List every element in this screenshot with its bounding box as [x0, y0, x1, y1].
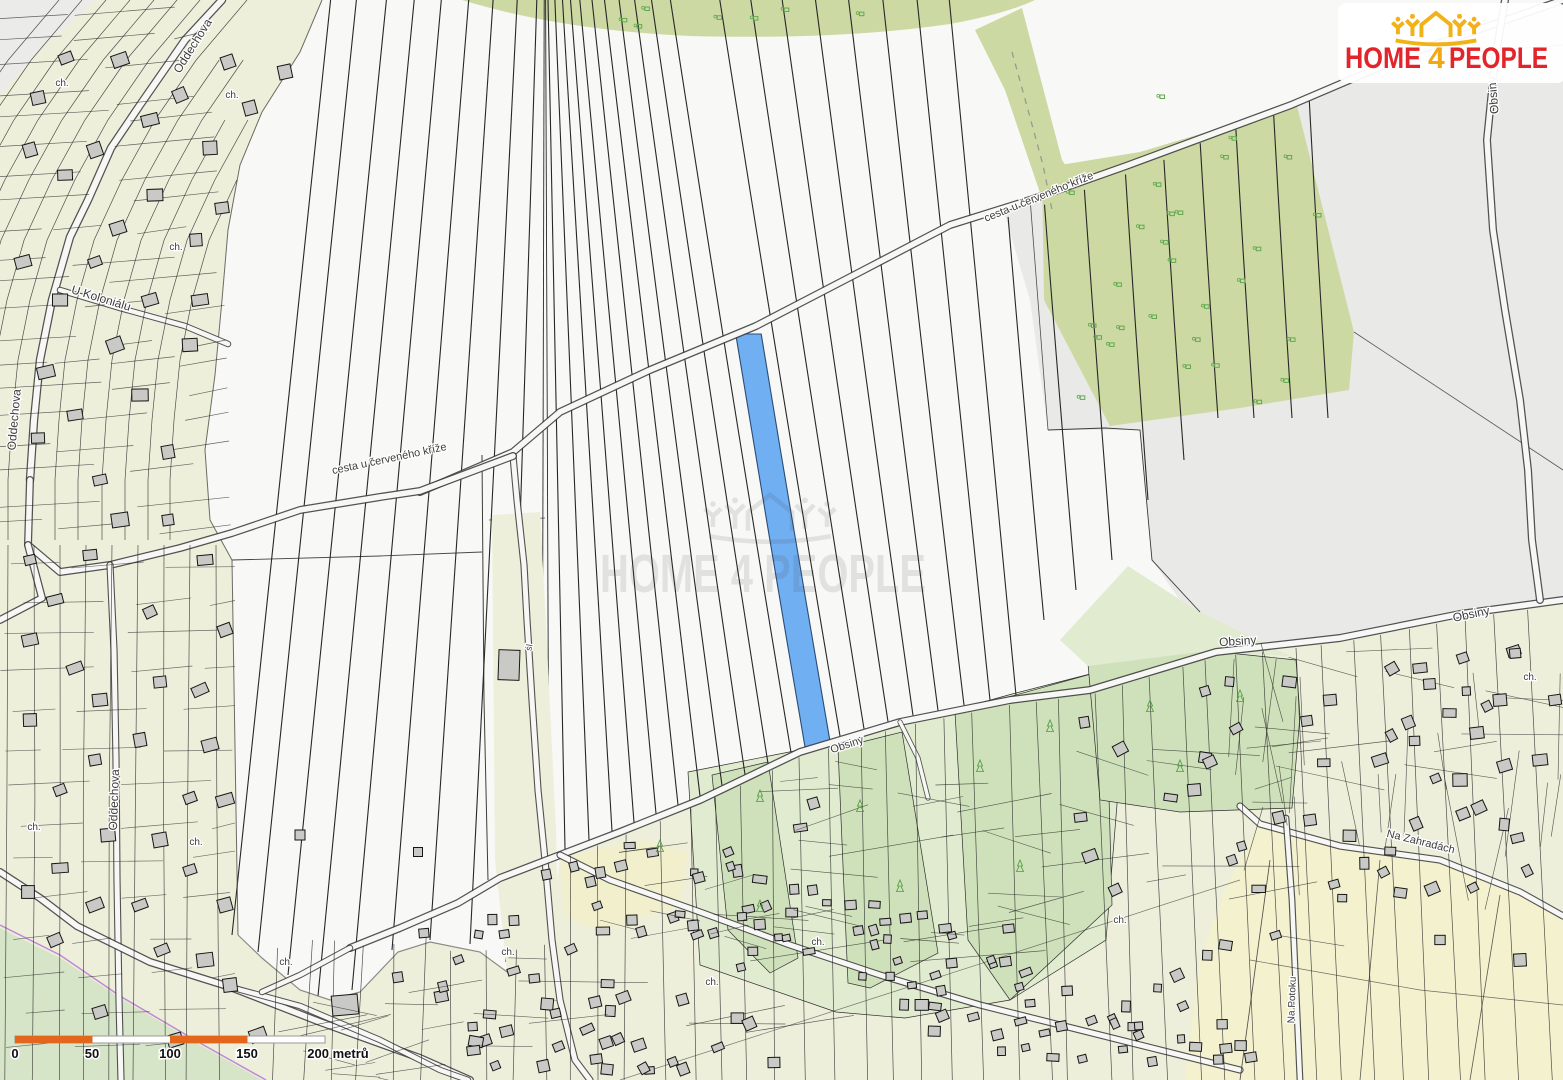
svg-text:ch.: ch.	[705, 977, 718, 988]
svg-text:ch.: ch.	[189, 837, 202, 848]
svg-text:Oddechova: Oddechova	[106, 769, 122, 831]
svg-text:ch.: ch.	[55, 78, 68, 89]
svg-text:PEOPLE: PEOPLE	[1449, 42, 1548, 75]
svg-text:HOME 4 PEOPLE: HOME 4 PEOPLE	[600, 544, 926, 604]
svg-text:ch.: ch.	[169, 242, 182, 253]
svg-text:0: 0	[11, 1046, 18, 1061]
svg-text:ch.: ch.	[1523, 672, 1536, 683]
svg-text:Obsiny: Obsiny	[1219, 633, 1257, 650]
svg-text:HOME: HOME	[1345, 42, 1421, 75]
svg-text:150: 150	[236, 1046, 258, 1061]
svg-text:100: 100	[159, 1046, 181, 1061]
svg-text:ch.: ch.	[811, 937, 824, 948]
svg-text:ch.: ch.	[27, 822, 40, 833]
svg-text:ch.: ch.	[225, 90, 238, 101]
svg-text:ch.: ch.	[279, 957, 292, 968]
svg-text:ch.: ch.	[501, 947, 514, 958]
svg-text:200 metrů: 200 metrů	[307, 1046, 368, 1061]
svg-text:Na Potoku: Na Potoku	[1286, 976, 1299, 1023]
svg-text:50: 50	[85, 1046, 99, 1061]
svg-text:ch.: ch.	[1113, 915, 1126, 926]
svg-text:4: 4	[1428, 42, 1445, 75]
